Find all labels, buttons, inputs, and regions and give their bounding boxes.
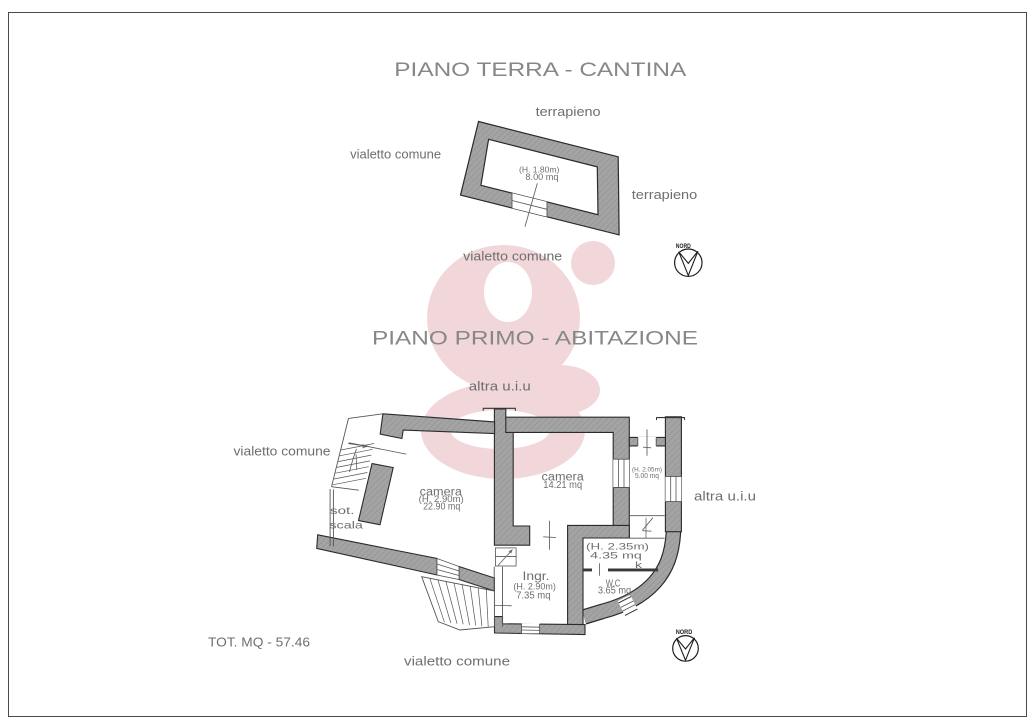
svg-text:PIANO TERRA - CANTINA: PIANO TERRA - CANTINA — [394, 59, 686, 81]
svg-text:scala: scala — [329, 520, 363, 532]
svg-text:vialetto comune: vialetto comune — [404, 655, 510, 669]
svg-text:8.00 mq: 8.00 mq — [525, 172, 558, 182]
svg-text:14.21 mq: 14.21 mq — [543, 480, 582, 491]
svg-text:altra u.i.u: altra u.i.u — [469, 380, 531, 394]
svg-text:sot.: sot. — [330, 505, 355, 517]
svg-text:altra u.i.u: altra u.i.u — [694, 490, 756, 504]
svg-text:NORD: NORD — [676, 243, 691, 250]
svg-text:terrapieno: terrapieno — [536, 105, 601, 119]
svg-text:22.90 mq: 22.90 mq — [423, 502, 460, 513]
svg-text:k: k — [635, 560, 643, 570]
svg-text:TOT. MQ - 57.46: TOT. MQ - 57.46 — [208, 635, 310, 650]
svg-text:PIANO PRIMO - ABITAZIONE: PIANO PRIMO - ABITAZIONE — [372, 328, 698, 350]
svg-text:vialetto comune: vialetto comune — [350, 148, 441, 162]
svg-text:7.35 mq: 7.35 mq — [516, 590, 550, 601]
svg-text:3.65 mq: 3.65 mq — [598, 585, 631, 596]
svg-text:5.00 mq: 5.00 mq — [635, 473, 659, 480]
svg-text:vialetto comune: vialetto comune — [234, 445, 331, 459]
svg-text:vialetto comune: vialetto comune — [463, 250, 562, 264]
svg-text:terrapieno: terrapieno — [632, 188, 698, 202]
svg-text:NORD: NORD — [676, 629, 693, 636]
